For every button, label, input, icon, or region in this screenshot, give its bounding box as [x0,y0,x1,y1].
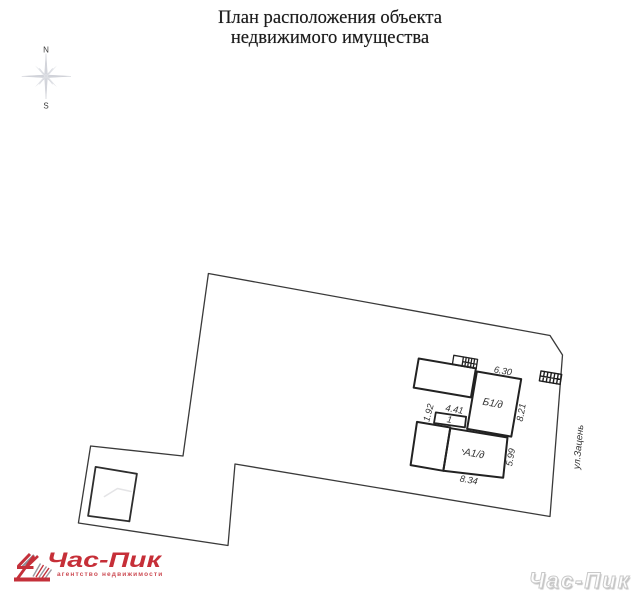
svg-text:А1/∂: А1/∂ [462,447,485,462]
svg-text:5.99: 5.99 [504,447,517,467]
svg-text:8.21: 8.21 [515,403,528,423]
svg-text:Б1/∂: Б1/∂ [482,397,504,411]
svg-text:1: 1 [446,414,453,425]
svg-text:ул.Зацень: ул.Зацень [571,424,586,470]
svg-text:N: N [43,46,49,55]
svg-text:8.34: 8.34 [459,474,479,487]
svg-text:S: S [43,102,48,111]
